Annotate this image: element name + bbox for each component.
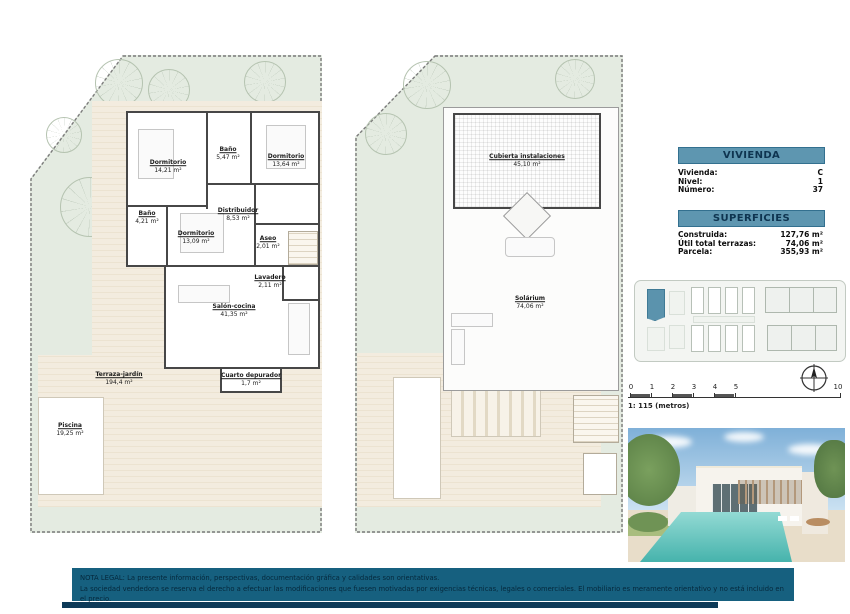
vivienda-panel-title: VIVIENDA (723, 150, 780, 161)
solarium-sofa (451, 313, 493, 327)
room-label-dormitorio1: Dormitorio14,21 m² (150, 159, 187, 175)
floorplan-roof: Cubierta instalaciones45,10 m² Solárium7… (355, 55, 623, 533)
partition-wall (254, 223, 318, 225)
tree-icon (244, 61, 286, 103)
site-unit (693, 316, 755, 323)
wood-slat-overhang (738, 480, 802, 504)
sun-lounger (778, 516, 787, 521)
superficies-panel-title: SUPERFICIES (713, 213, 790, 224)
table-row: Vivienda: C (678, 169, 823, 177)
site-unit (691, 287, 704, 314)
scale-tick: 10 (834, 383, 843, 391)
table-row: Número: 37 (678, 186, 823, 194)
scale-tick: 2 (671, 383, 675, 391)
table-row: Útil total terrazas: 74,06 m² (678, 240, 823, 248)
room-label-lavadero: Lavadero2,11 m² (254, 274, 285, 290)
tree-icon (365, 113, 407, 155)
room-label-dormitorio3: Dormitorio13,09 m² (178, 230, 215, 246)
bush (628, 512, 668, 532)
sun-lounger (790, 516, 799, 521)
page: { "colors": { "accent_teal": "#5e96b0", … (0, 0, 850, 614)
site-unit (725, 325, 738, 352)
partition-wall (206, 113, 208, 209)
site-unit (742, 325, 755, 352)
room-label-cuarto-depurador: Cuarto depurador1,7 m² (221, 372, 281, 388)
villa-render-image (628, 428, 845, 562)
room-label-salon-cocina: Salón-cocina41,35 m² (213, 303, 256, 319)
solarium-table (505, 237, 555, 257)
scale-caption: 1: 115 (metros) (628, 402, 689, 410)
partition-wall (254, 185, 256, 265)
scale-tick: 3 (692, 383, 696, 391)
room-label-piscina: Piscina19,25 m² (56, 422, 83, 438)
site-unit (725, 287, 738, 314)
vivienda-panel-header: VIVIENDA (678, 147, 825, 164)
partition-wall (166, 207, 168, 265)
pool-ghost (393, 377, 441, 499)
utility-box (583, 453, 617, 495)
legal-note-bar: NOTA LEGAL: La presente información, per… (72, 568, 794, 601)
dining-set (806, 518, 830, 526)
site-block (767, 325, 837, 351)
tree-icon (95, 59, 143, 107)
site-unit (708, 325, 721, 352)
site-unit (742, 287, 755, 314)
kitchen-island (288, 303, 310, 355)
table-row: Construida: 127,76 m² (678, 231, 823, 239)
room-label-terraza-jardin: Terraza-jardín194,4 m² (95, 371, 142, 387)
room-label-aseo: Aseo2,01 m² (256, 235, 280, 251)
bottom-rule (62, 602, 718, 608)
site-unit (669, 325, 685, 349)
solarium-sofa (451, 329, 465, 365)
site-unit (647, 327, 665, 351)
site-unit-highlighted (647, 289, 665, 321)
scale-bar: 0 1 2 3 4 5 10 1: 115 (metros) (628, 386, 843, 416)
site-plan-map (634, 280, 846, 362)
room-label-dormitorio2: Dormitorio13,64 m² (268, 153, 305, 169)
partition-wall (206, 183, 318, 185)
pool-level1 (38, 397, 104, 495)
table-row: Parcela: 355,93 m² (678, 248, 823, 256)
site-unit (669, 291, 685, 315)
scale-tick: 4 (713, 383, 717, 391)
site-unit (708, 287, 721, 314)
room-label-solarium: Solárium74,06 m² (515, 295, 545, 311)
scale-tick: 1 (650, 383, 654, 391)
scale-tick: 5 (734, 383, 738, 391)
superficies-panel-header: SUPERFICIES (678, 210, 825, 227)
site-unit (691, 325, 704, 352)
room-label-distribuidor: Distribuidor8,53 m² (218, 207, 259, 223)
room-label-cubierta: Cubierta instalaciones45,10 m² (489, 153, 565, 169)
tree-icon (46, 117, 82, 153)
sofa-furniture (178, 285, 230, 303)
room-label-bano1: Baño5,47 m² (216, 146, 240, 162)
legal-line-1: NOTA LEGAL: La presente información, per… (80, 573, 786, 584)
stairs (573, 395, 619, 443)
vivienda-table: Vivienda: C Nivel: 1 Número: 37 (678, 169, 823, 194)
room-label-bano2: Baño4,21 m² (135, 210, 159, 226)
partition-wall (128, 205, 208, 207)
site-block (765, 287, 837, 313)
tree-foliage (814, 440, 845, 498)
floorplan-level1: Dormitorio14,21 m² Baño5,47 m² Dormitori… (30, 55, 322, 533)
partition-wall (250, 113, 252, 185)
superficies-table: Construida: 127,76 m² Útil total terraza… (678, 231, 823, 256)
scale-tick: 0 (629, 383, 633, 391)
tree-icon (403, 61, 451, 109)
table-row: Nivel: 1 (678, 178, 823, 186)
stairs (288, 231, 318, 265)
tree-icon (555, 59, 595, 99)
partition-wall (282, 299, 318, 301)
